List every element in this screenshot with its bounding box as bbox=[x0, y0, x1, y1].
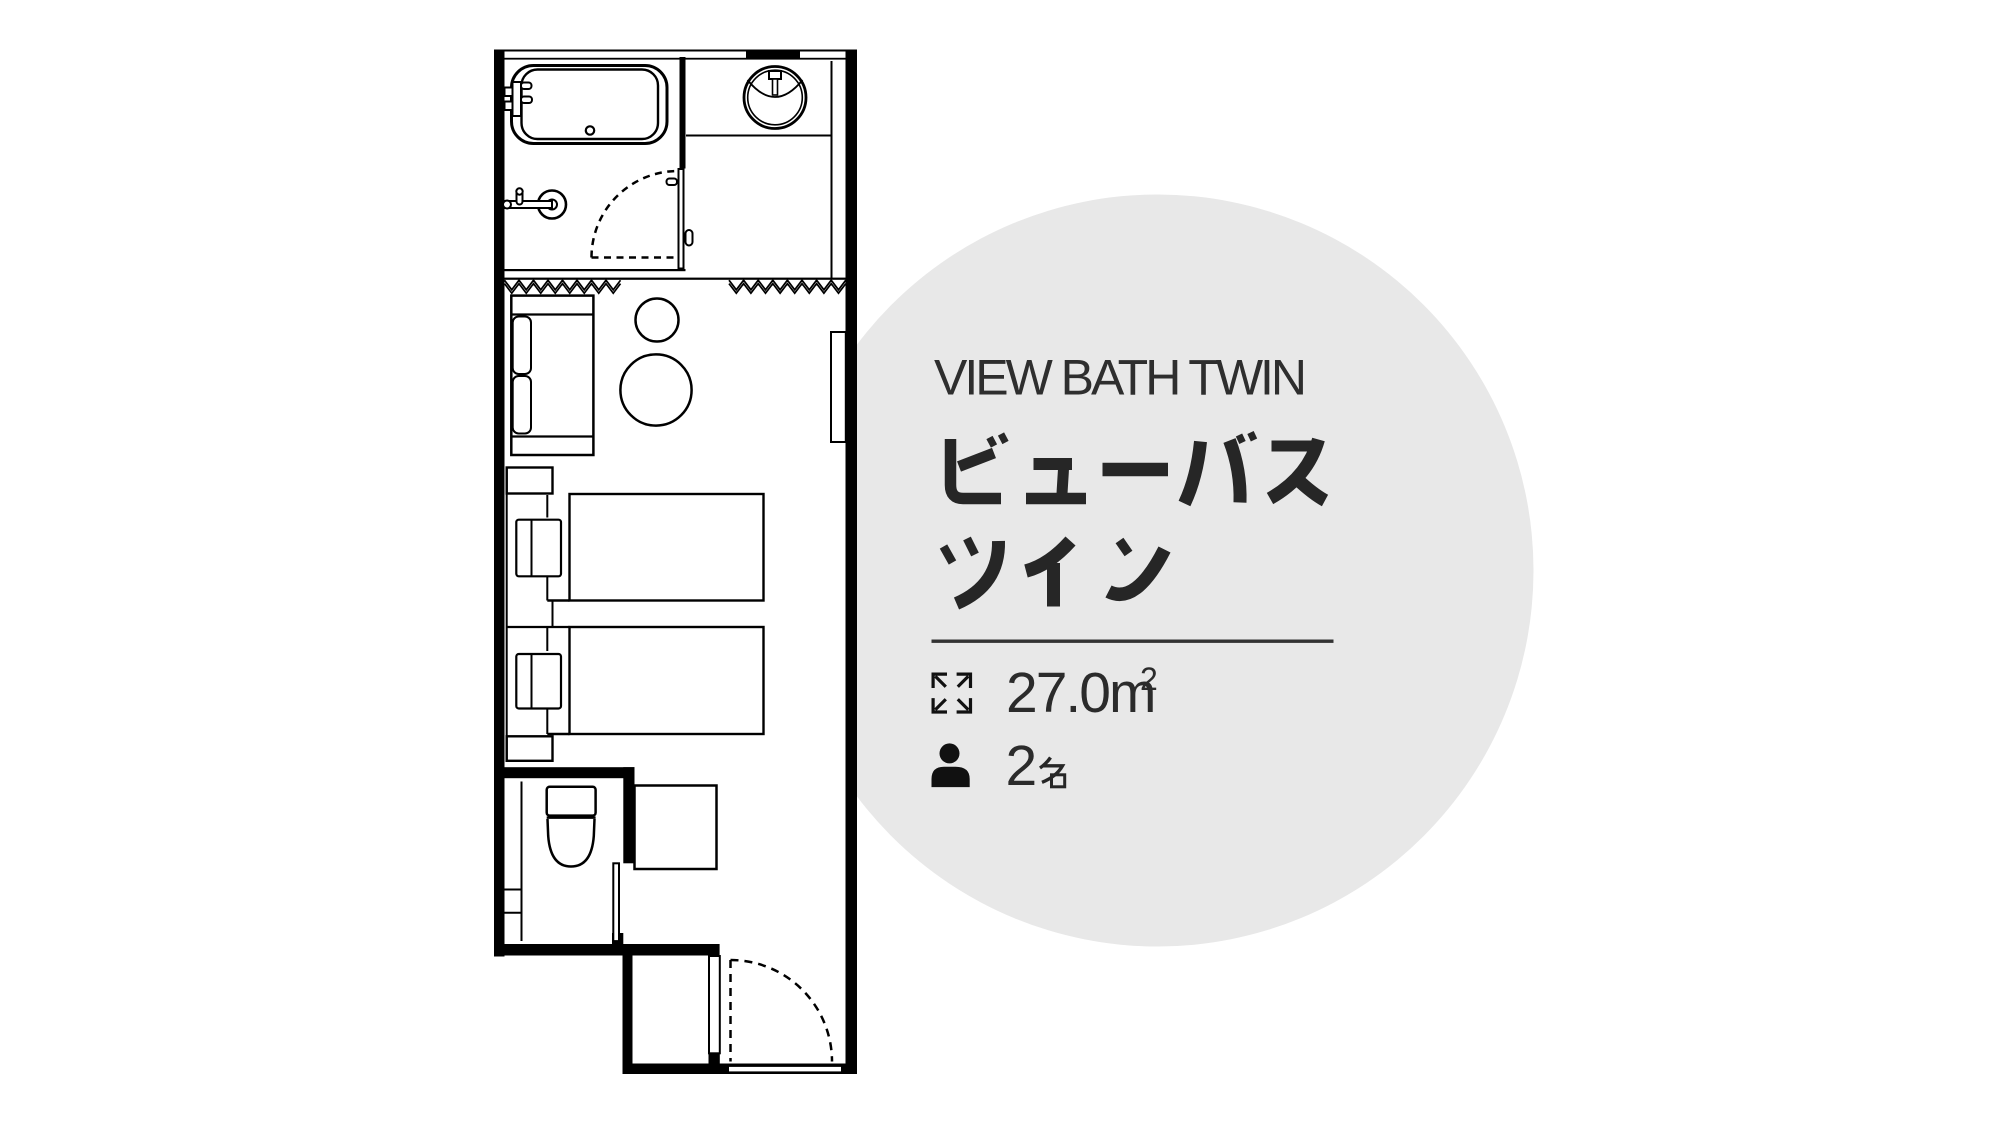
svg-text:2: 2 bbox=[1140, 661, 1158, 697]
svg-text:2: 2 bbox=[1006, 734, 1038, 798]
svg-text:VIEW BATH TWIN: VIEW BATH TWIN bbox=[934, 350, 1304, 406]
svg-text:27.0: 27.0 bbox=[1006, 661, 1109, 725]
